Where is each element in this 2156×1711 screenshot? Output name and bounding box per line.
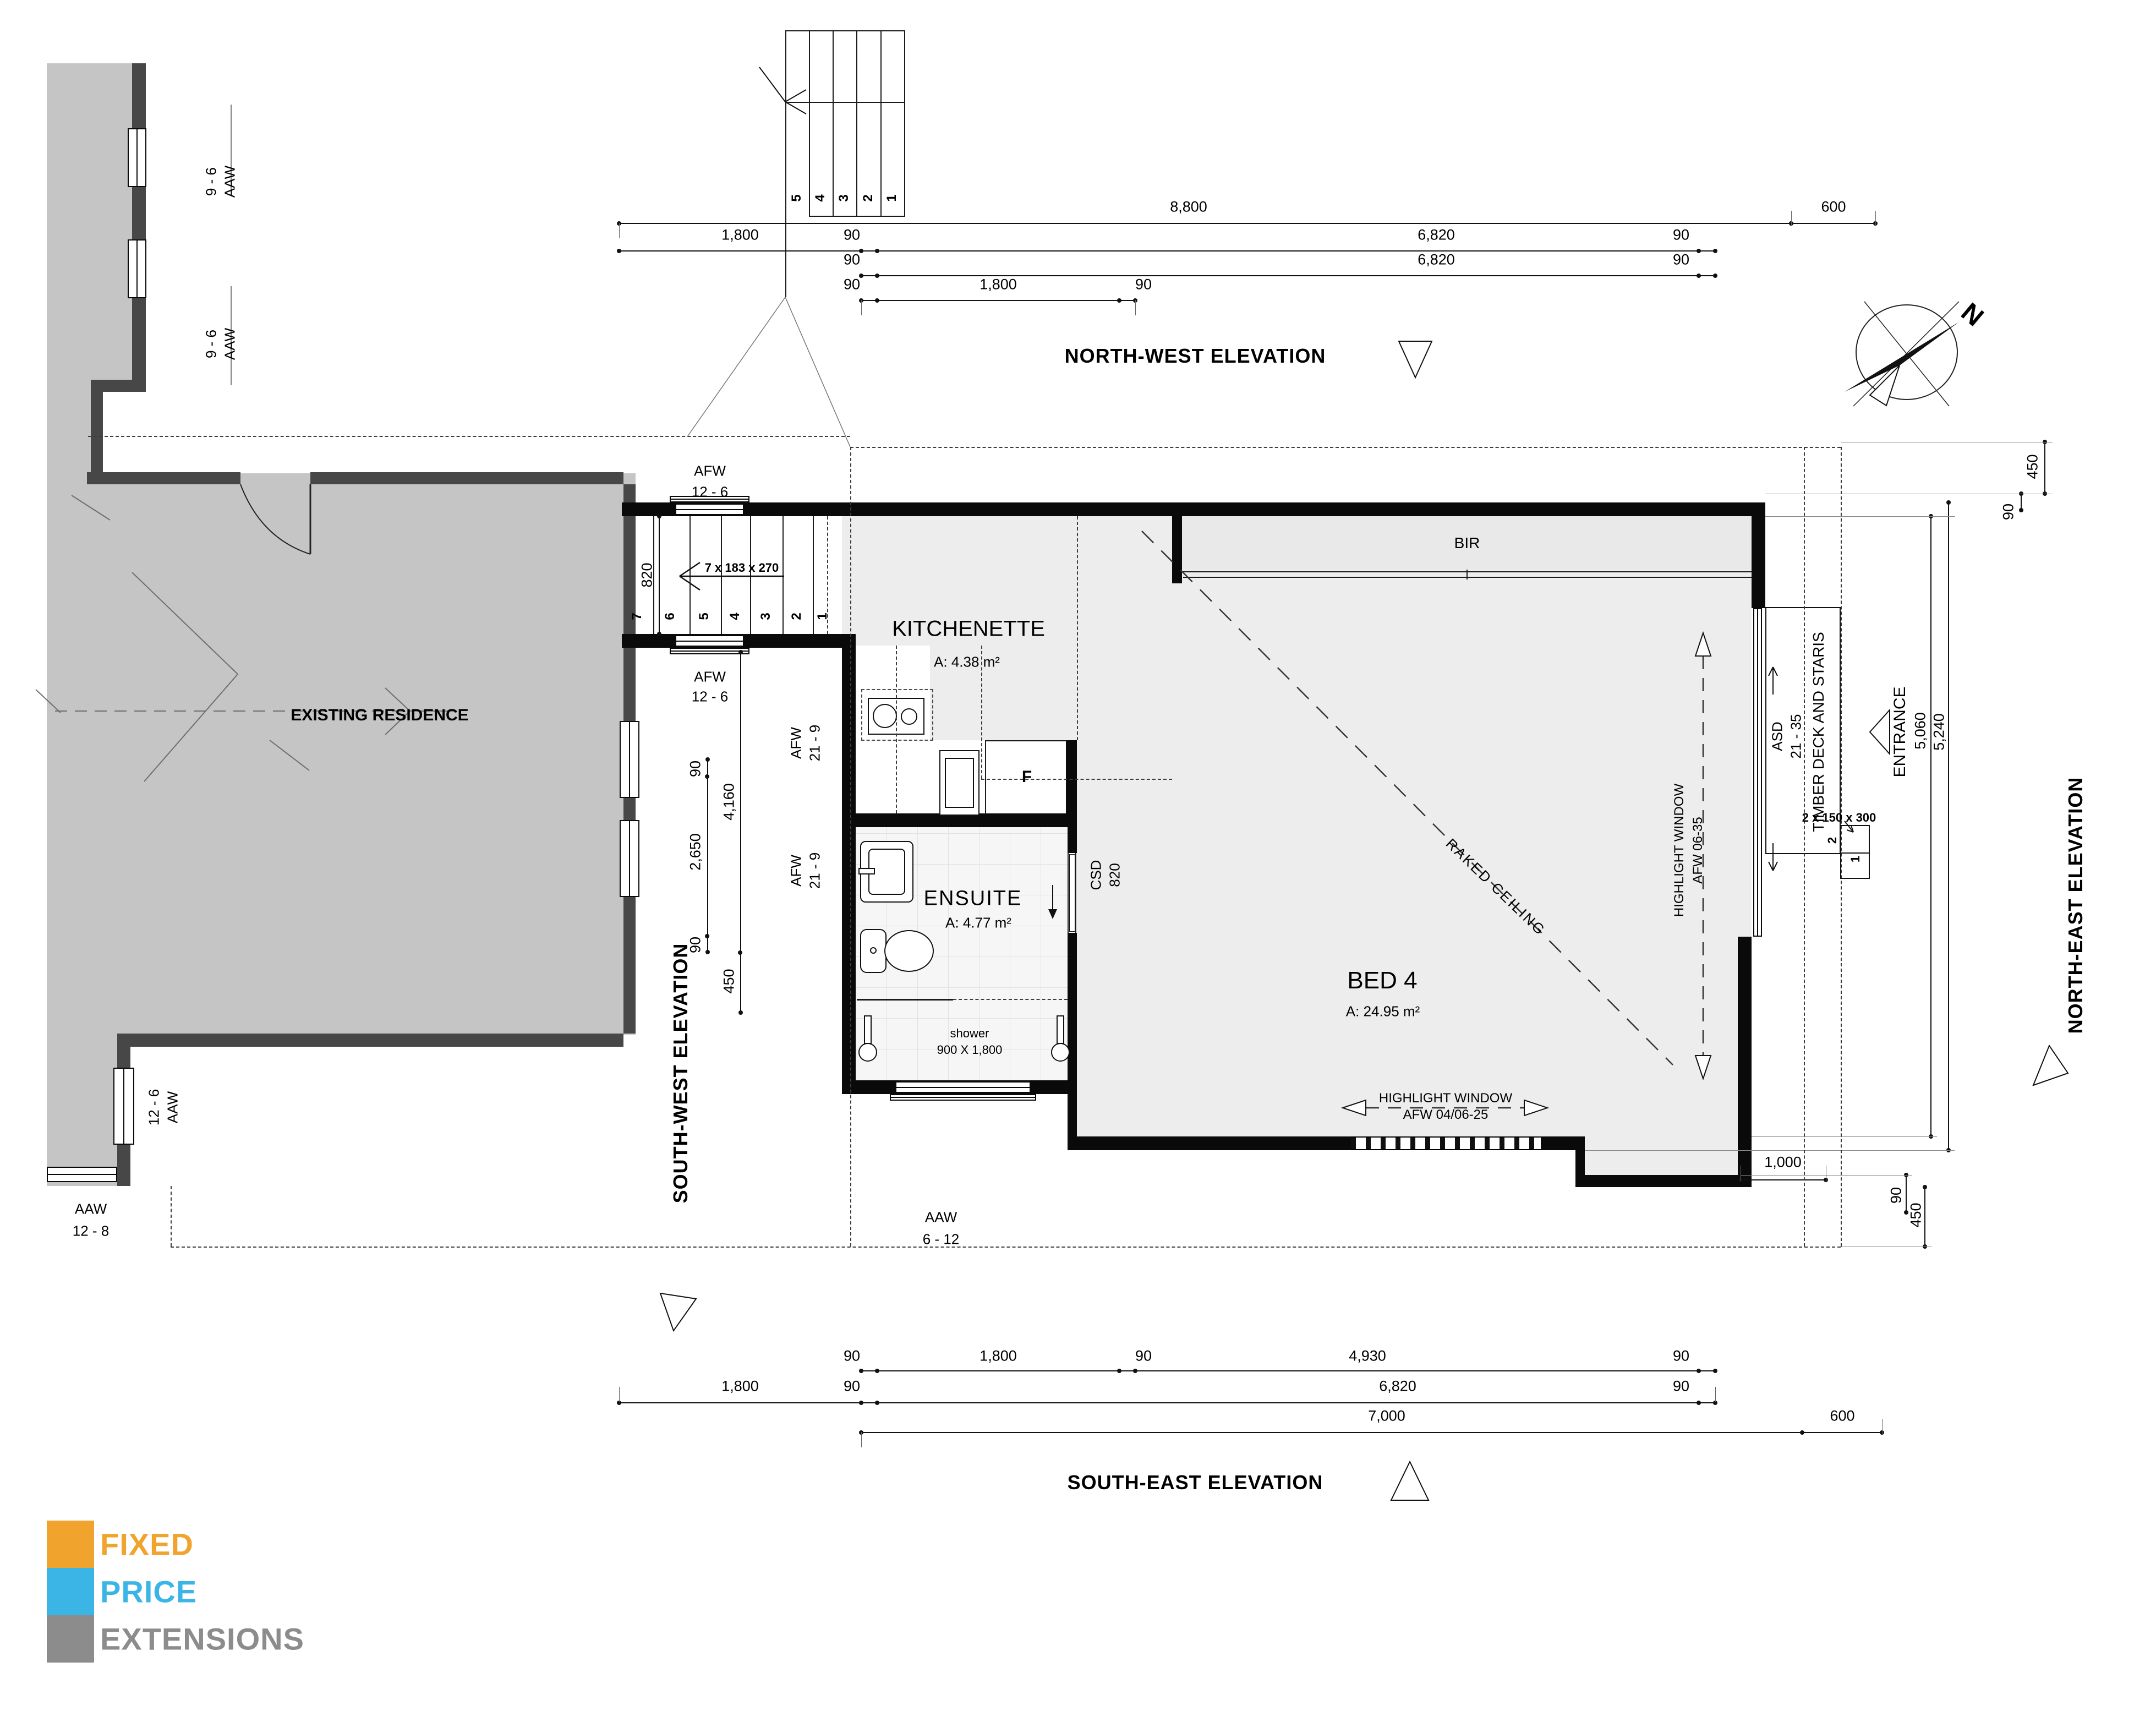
dim-label: 90: [2000, 504, 2017, 520]
dim-label: 90: [844, 1348, 860, 1365]
window-afw-21-9-a: [620, 721, 639, 798]
stair-number: 3: [758, 613, 774, 620]
bench-centerline: [896, 646, 897, 813]
dim-label: 90: [1888, 1187, 1905, 1204]
window-aaw-9-6-a: [128, 128, 146, 187]
logo-square-orange: [47, 1521, 94, 1568]
logo-word-extensions: EXTENSIONS: [100, 1621, 304, 1657]
dim-label: 90: [687, 937, 704, 953]
highlight-window-label: HIGHLIGHT WINDOW: [1379, 1091, 1512, 1106]
compass-north-label: N: [1955, 297, 1989, 332]
dim-line: [619, 223, 1791, 224]
extension-line: [1741, 1175, 1912, 1176]
sink-bowl: [945, 758, 974, 808]
kitchenette-west-wall: [842, 648, 856, 827]
stair-number: 6: [663, 613, 678, 620]
toilet-bowl: [884, 930, 934, 972]
kitchenette-area: A: 4.38 m²: [934, 654, 1000, 671]
dim-label: 450: [721, 969, 738, 993]
window-label: AAW: [165, 1091, 182, 1123]
dim-line: [861, 300, 1135, 301]
stair-detail-arrow-line: [785, 102, 905, 103]
dim-line: [2021, 494, 2022, 510]
window-label: AAW: [75, 1201, 107, 1218]
dim-label: 90: [844, 252, 860, 269]
csd-pocket-line: [1075, 853, 1076, 933]
roof-outline-dashed: [88, 436, 850, 437]
dim-line: [2044, 442, 2045, 494]
asd-sliding-door: [1753, 608, 1762, 937]
entrance-marker: [1870, 710, 1890, 754]
deck-roof-line-dashed: [1804, 447, 1805, 1247]
dim-label: 90: [1673, 1378, 1689, 1395]
ensuite-title: ENSUITE: [924, 887, 1022, 911]
stair-tread: [721, 516, 722, 634]
window-label: 21 - 9: [807, 852, 824, 889]
dim-label: 450: [2024, 454, 2042, 479]
roof-outline-dashed: [850, 447, 851, 1247]
window-afw-12-6-bottom: [675, 635, 744, 647]
kitchenette-title: KITCHENETTE: [892, 617, 1045, 642]
stair-spec-label: 7 x 183 x 270: [705, 561, 779, 575]
bir-label: BIR: [1454, 534, 1480, 552]
existing-wall: [91, 392, 103, 472]
dim-line: [740, 652, 741, 1013]
dim-line: [1948, 502, 1949, 1150]
dim-label: 4,160: [721, 783, 738, 821]
entrance-label: ENTRANCE: [1891, 686, 1909, 777]
stair-tread: [690, 516, 691, 634]
stair-detail-line: [785, 30, 786, 297]
window-aaw-12-8: [47, 1167, 117, 1182]
window-label: 6 - 12: [923, 1231, 960, 1248]
bed4-area: A: 24.95 m²: [1346, 1003, 1420, 1020]
dim-label: 1,800: [721, 227, 759, 244]
dim-label: 1,800: [721, 1378, 759, 1395]
fridge-label: F: [1022, 768, 1032, 786]
ensuite-east-wall-bottom: [1068, 933, 1077, 1150]
dim-label: 450: [1908, 1202, 1925, 1227]
bed4-title: BED 4: [1347, 967, 1417, 994]
stair-tread: [750, 516, 751, 634]
sw-elevation-marker: [660, 1293, 696, 1331]
roof-outline-dashed: [171, 1247, 1841, 1248]
dim-line: [1741, 1179, 1826, 1180]
dim-label: 6,820: [1379, 1378, 1416, 1395]
logo-square-gray: [47, 1615, 94, 1663]
dim-label: 90: [844, 1378, 860, 1395]
se-elevation-marker: [1391, 1462, 1429, 1500]
shower-label: shower: [950, 1026, 989, 1041]
fridge-nook-edge: [985, 740, 1067, 741]
dim-line: [1906, 1175, 1907, 1212]
east-wall-bottom: [1738, 937, 1752, 1187]
dim-line: [619, 250, 1715, 252]
extension-line: [1765, 494, 2053, 494]
dim-line: [861, 1370, 1715, 1371]
shower-rail-left: [864, 1015, 872, 1044]
window-aaw-12-6: [113, 1068, 134, 1145]
logo-word-fixed: FIXED: [100, 1527, 194, 1562]
shower-screen: [857, 999, 953, 1001]
window-label: AFW: [694, 463, 726, 480]
stair-detail-number: 3: [836, 194, 852, 201]
dim-label: 90: [844, 227, 860, 244]
highlight-window-label: HIGHLIGHT WINDOW: [1672, 784, 1687, 917]
highlight-window-hatch: [1351, 1136, 1541, 1150]
existing-wall: [132, 63, 146, 380]
dim-label: 5,240: [1931, 713, 1948, 751]
bed4-floor: [1077, 516, 1752, 1136]
window-label: AAW: [222, 328, 239, 360]
highlight-window-label: AFW 04/06-25: [1403, 1107, 1489, 1123]
stair-detail-number: 5: [789, 194, 805, 201]
addition-north-wall: [622, 502, 1765, 516]
highlight-window-label: AFW 06-35: [1690, 817, 1706, 883]
dim-label: 1,800: [979, 1348, 1017, 1365]
basin-tap: [858, 868, 875, 874]
shower-rail-right: [1057, 1015, 1064, 1044]
compass-icon: [1845, 302, 1959, 406]
existing-residence-label: EXISTING RESIDENCE: [291, 706, 468, 725]
extension-line: [1765, 516, 1955, 517]
window-afw-12-6-top: [675, 504, 744, 515]
dim-label: 90: [1135, 276, 1152, 293]
asd-label: ASD: [1769, 721, 1786, 751]
roof-outline-dashed: [850, 447, 1841, 448]
se-elevation-title: SOUTH-EAST ELEVATION: [1068, 1471, 1323, 1494]
stair-detail-arrow: [759, 67, 806, 114]
deck-steps-label: 2 x 150 x 300: [1802, 811, 1876, 825]
kitchenette-bed4-boundary: [1077, 516, 1078, 740]
nw-elevation-marker: [1399, 341, 1432, 378]
stair-detail-line: [856, 30, 857, 216]
existing-wall: [87, 472, 240, 484]
csd-label: 820: [1107, 863, 1124, 887]
dim-label: 1,000: [1764, 1154, 1802, 1171]
dim-label: 90: [1673, 227, 1689, 244]
window-label: AFW: [694, 669, 726, 686]
extension-line: [1585, 1150, 1955, 1151]
toilet-button: [870, 947, 877, 954]
floor-plan-canvas: 8,800 600 1,800 90 6,820 90 90 6,820 90 …: [0, 0, 2156, 1711]
dim-label: 8,800: [1170, 199, 1207, 216]
dim-label: 6,820: [1418, 227, 1455, 244]
existing-wall: [310, 472, 623, 484]
dim-label: 600: [1830, 1408, 1854, 1425]
stair-number: 2: [789, 613, 805, 620]
window-sill: [890, 1094, 1036, 1101]
window-label: 12 - 6: [146, 1089, 163, 1126]
dim-line: [707, 759, 708, 952]
window-label: 21 - 9: [807, 725, 824, 762]
bed4-south-wall-east: [1575, 1175, 1752, 1187]
csd-door-leaf: [1069, 854, 1075, 932]
asd-label: 21 - 35: [1788, 714, 1805, 759]
window-aaw-9-6-b: [128, 239, 146, 298]
window-label: 12 - 8: [73, 1223, 110, 1240]
dim-line: [1791, 223, 1875, 224]
csd-pocket-line: [1068, 853, 1069, 933]
door-swing-arc: [240, 484, 310, 554]
deck-steps: [1841, 821, 1869, 878]
dim-label: 90: [1673, 1348, 1689, 1365]
ne-elevation-title: NORTH-EAST ELEVATION: [2064, 777, 2087, 1034]
existing-wall: [117, 1034, 623, 1047]
stair-detail-top: [785, 30, 905, 31]
logo-square-blue: [47, 1568, 94, 1615]
roof-outline-dashed: [171, 1186, 172, 1247]
east-wall-top: [1752, 502, 1765, 608]
window-label: AAW: [222, 166, 239, 198]
dim-label: 4,930: [1349, 1348, 1386, 1365]
window-label: AAW: [925, 1209, 957, 1226]
fridge-nook-edge: [985, 740, 986, 814]
shower-screen-dashed: [953, 999, 1068, 1000]
dim-label: 1,800: [979, 276, 1017, 293]
stair-detail-number: 1: [884, 194, 900, 201]
dim-line: [659, 516, 660, 634]
stair-detail-line: [904, 30, 905, 216]
csd-label: CSD: [1088, 860, 1105, 890]
ensuite-west-wall: [842, 827, 856, 1094]
window-label: 9 - 6: [203, 167, 220, 196]
extension-line: [1841, 1247, 1931, 1247]
shower-rose-left: [858, 1043, 877, 1062]
fridge-nook-wall: [1066, 740, 1077, 827]
dim-label: 2,650: [687, 833, 704, 871]
roof-outline-dashed: [1841, 447, 1842, 1247]
shower-size-label: 900 X 1,800: [937, 1043, 1003, 1057]
window-label: 12 - 6: [692, 484, 729, 501]
bir-left-wall: [1172, 516, 1182, 583]
overhead-cupboard-line: [981, 779, 1172, 780]
window-sill: [670, 648, 749, 654]
stair-number: 4: [727, 613, 743, 620]
existing-wall: [91, 380, 146, 392]
stair-detail-number: 2: [861, 194, 876, 201]
ensuite-area: A: 4.77 m²: [945, 915, 1011, 932]
stair-tread: [813, 516, 814, 634]
deck-step-number: 1: [1848, 856, 1863, 862]
dim-label: 6,820: [1418, 252, 1455, 269]
dim-label: 90: [844, 276, 860, 293]
stair-number: 5: [697, 613, 712, 620]
dim-line: [619, 1402, 1715, 1403]
deck-step-number: 2: [1825, 837, 1840, 844]
ne-elevation-marker: [2033, 1046, 2068, 1085]
dim-line: [861, 1432, 1882, 1433]
cooktop-burner-small: [901, 708, 917, 725]
bed4-floor-step: [1585, 1136, 1752, 1175]
dim-line: [1930, 516, 1931, 1136]
existing-roof-lines: [36, 495, 457, 781]
logo-word-price: PRICE: [100, 1574, 197, 1610]
nw-elevation-title: NORTH-WEST ELEVATION: [1065, 345, 1326, 368]
cooktop-burner-large: [873, 704, 897, 728]
extension-line: [1752, 1136, 1937, 1137]
dim-label: 820: [639, 562, 656, 587]
stair-detail-line: [809, 30, 810, 216]
window-label: 12 - 6: [692, 688, 729, 706]
dim-label: 600: [1821, 199, 1846, 216]
window-label: AFW: [788, 855, 805, 887]
window-label: AFW: [788, 727, 805, 759]
dim-label: 90: [1135, 1348, 1152, 1365]
sw-elevation-title: SOUTH-WEST ELEVATION: [669, 943, 692, 1204]
dim-label: 5,060: [1912, 712, 1929, 750]
window-label: 9 - 6: [203, 330, 220, 358]
bir-door-split: [1466, 570, 1468, 580]
stair-tread: [782, 516, 784, 634]
dim-label: 90: [687, 761, 704, 777]
window-afw-21-9-b: [620, 820, 639, 897]
window-aaw-6-12: [895, 1081, 1031, 1093]
extension-line: [1841, 442, 2053, 442]
dim-label: 90: [1673, 252, 1689, 269]
stair-number: 1: [815, 613, 830, 620]
stair-number: 7: [630, 613, 645, 620]
stair-detail-number: 4: [813, 194, 828, 201]
stair-detail-line: [833, 30, 834, 216]
projection-lines: [688, 297, 850, 447]
dim-label: 7,000: [1368, 1408, 1405, 1425]
deck-label: TIMBER DECK AND STARIS: [1810, 632, 1827, 832]
stair-detail-line: [880, 30, 882, 216]
stair-detail-bottom: [809, 216, 905, 217]
shower-rose-right: [1051, 1043, 1070, 1062]
